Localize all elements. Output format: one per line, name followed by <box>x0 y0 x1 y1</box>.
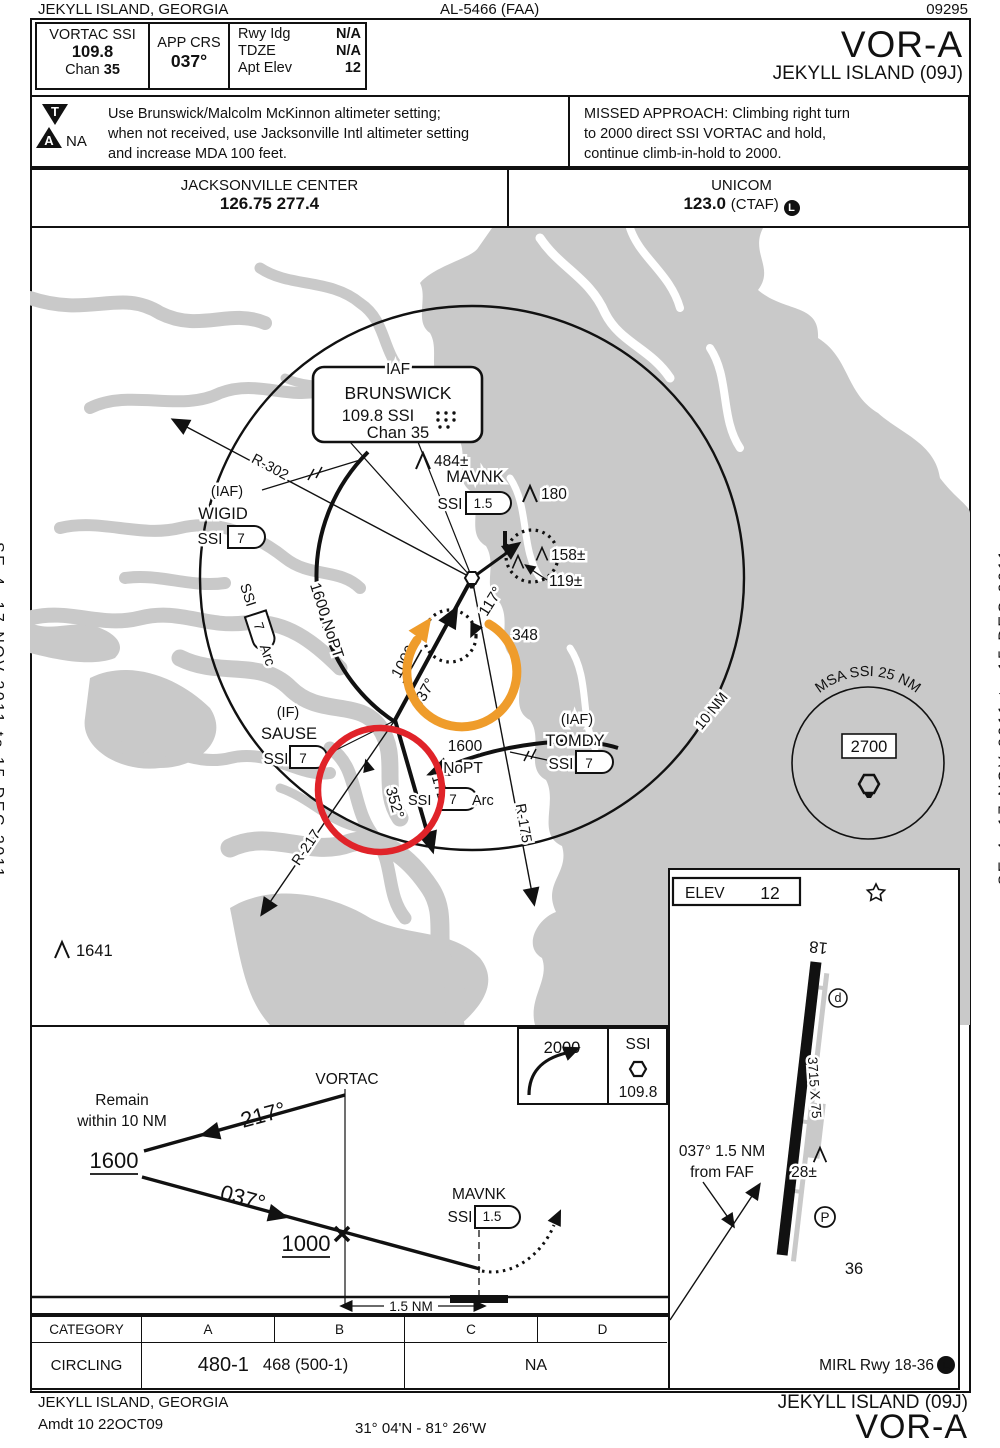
arc-south-dme-label: SSI 7 Arc <box>408 788 494 810</box>
runway-bar <box>450 1295 508 1303</box>
alternate-na: NA <box>66 133 87 150</box>
unicom-ctaf: (CTAF) <box>731 196 779 213</box>
obstacle-158: 158± <box>551 547 586 564</box>
unicom-name: UNICOM <box>509 177 974 194</box>
iaf-title: IAF <box>386 361 410 378</box>
elev-value: 12 <box>760 883 779 903</box>
svg-text:1.5 NM: 1.5 NM <box>389 1299 433 1313</box>
minimums-header-c: C <box>405 1317 538 1343</box>
svg-text:SAUSE: SAUSE <box>261 725 317 743</box>
svg-text:SSI: SSI <box>198 531 223 548</box>
svg-text:Arc: Arc <box>472 793 494 809</box>
footer-amdt: Amdt 10 22OCT09 <box>38 1416 163 1433</box>
parking-letter: P <box>820 1210 829 1225</box>
app-crs-label: APP CRS <box>150 35 228 51</box>
svg-text:1.5: 1.5 <box>483 1209 502 1224</box>
center-freqs: 126.75 277.4 <box>32 194 507 214</box>
apt-elev-value: 12 <box>345 60 361 76</box>
r175-label: R-175 <box>512 802 535 844</box>
obstacle-180: 180 <box>541 486 567 503</box>
iaf-freq: 109.8 SSI <box>342 407 414 425</box>
rad-348-label: 348 <box>512 627 538 644</box>
final-course-arrow <box>670 1196 752 1320</box>
circling-row-label: CIRCLING <box>32 1343 142 1388</box>
unicom-freq: 123.0 <box>683 194 726 213</box>
svg-text:L: L <box>943 1360 950 1372</box>
tdze-value: N/A <box>336 43 361 59</box>
iaf-chan: Chan 35 <box>367 424 429 442</box>
top-chart-number: 09295 <box>926 1 968 18</box>
minimums-header-category: CATEGORY <box>32 1317 142 1343</box>
svg-text:(IAF): (IAF) <box>561 712 593 728</box>
profile-mavnk: MAVNK SSI 1.5 <box>448 1186 520 1228</box>
notes-row: T A NA Use Brunswick/Malcolm McKinnon al… <box>30 95 970 168</box>
rwy-end-18: 18 <box>808 937 828 957</box>
obstacle-484: 484± <box>434 453 469 470</box>
edition-left: SE-4, 17 NOV 2011 to 15 DEC 2011 <box>0 542 6 879</box>
rwy-ldg-value: N/A <box>336 26 361 42</box>
airport-title: JEKYLL ISLAND (09J) <box>773 63 963 85</box>
briefing-strip: VORTAC SSI 109.8 Chan 35 APP CRS 037° Rw… <box>35 22 367 90</box>
svg-text:TOMDY: TOMDY <box>545 732 604 750</box>
arc-south-alt1: 1600 <box>448 738 483 755</box>
faf-note-line1: 037° 1.5 NM <box>679 1143 765 1160</box>
missed-navaid: SSI <box>626 1036 651 1053</box>
ctaf-l-badge: L <box>784 200 800 216</box>
profile-vortac-label: VORTAC <box>315 1071 378 1088</box>
svg-text:7: 7 <box>449 792 457 807</box>
star-icon <box>867 884 884 900</box>
circling-mins-ab: 480-1 468 (500-1) <box>142 1343 405 1388</box>
svg-text:WIGID: WIGID <box>198 505 248 523</box>
missed-freq: 109.8 <box>619 1084 658 1101</box>
rwy-end-36: 36 <box>845 1260 863 1278</box>
hold-altitude: 1600 <box>90 1148 139 1173</box>
obstacle-28: 28± <box>791 1164 817 1181</box>
navaid-chan-value: 35 <box>104 62 120 78</box>
svg-text:7: 7 <box>299 751 307 766</box>
crs-352-label: 352° <box>382 785 407 821</box>
svg-text:MAVNK: MAVNK <box>452 1186 507 1203</box>
svg-text:SSI: SSI <box>408 793 431 809</box>
remain-line2: within 10 NM <box>76 1113 167 1130</box>
takeoff-mins-icon: T <box>42 104 68 125</box>
msa-altitude: 2700 <box>851 738 888 756</box>
profile-view: 2000 SSI 109.8 Remain within 10 NM VORTA… <box>30 1025 670 1315</box>
navaid-chan-label: Chan <box>65 62 100 78</box>
svg-text:SSI: SSI <box>438 496 463 513</box>
minimums-header-a: A <box>142 1317 275 1343</box>
svg-text:7: 7 <box>585 756 593 771</box>
navaid-name: VORTAC SSI <box>37 27 148 43</box>
edition-right: SE-4, 17 NOV 2011 to 15 DEC 2011 <box>996 548 1000 885</box>
airport-sketch-svg: ELEV 12 18 36 3715 X 75 28± d P 037° 1.5… <box>670 870 958 1388</box>
svg-text:SSI: SSI <box>264 751 289 768</box>
svg-text:(IF): (IF) <box>277 705 300 721</box>
circling-mins-cd: NA <box>405 1343 667 1388</box>
alternate-mins-icon: A <box>36 127 62 148</box>
svg-text:1.5: 1.5 <box>474 496 493 511</box>
fix-mavnk: MAVNK SSI 1.5 <box>438 468 511 514</box>
footer-coords: 31° 04'N - 81° 26'W <box>355 1420 486 1437</box>
tdze-label: TDZE <box>238 43 276 59</box>
svg-text:SSI: SSI <box>448 1209 473 1226</box>
missed-approach-note: MISSED APPROACH: Climbing right turn to … <box>584 104 850 164</box>
r302-label: R-302 <box>249 451 291 484</box>
minimums-header-b: B <box>275 1317 405 1343</box>
faf-note-line2: from FAF <box>690 1164 754 1181</box>
profile-diagram: 2000 SSI 109.8 Remain within 10 NM VORTA… <box>32 1027 668 1313</box>
minimums-table: CATEGORY A B C D CIRCLING 480-1 468 (500… <box>30 1315 670 1390</box>
footer-procedure: VOR-A <box>855 1408 968 1447</box>
rwy-dimensions: 3715 X 75 <box>805 1056 824 1118</box>
airport-sketch: ELEV 12 18 36 3715 X 75 28± d P 037° 1.5… <box>668 868 960 1390</box>
mda-altitude: 1000 <box>282 1231 331 1256</box>
procedure-title: VOR-A <box>841 24 963 66</box>
top-chart-ref: AL-5466 (FAA) <box>440 1 539 18</box>
svg-text:(IAF): (IAF) <box>211 484 243 500</box>
svg-text:MAVNK: MAVNK <box>446 468 503 486</box>
missed-approach-boxes: 2000 SSI 109.8 <box>518 1028 667 1104</box>
footer-city: JEKYLL ISLAND, GEORGIA <box>38 1394 228 1411</box>
svg-text:7: 7 <box>237 531 245 546</box>
r302-radial <box>183 425 472 578</box>
outbound-crs: 217° <box>238 1097 288 1133</box>
obstacle-119: 119± <box>549 573 583 590</box>
inbound-crs: 037° <box>218 1180 268 1216</box>
ramp-letter: d <box>835 991 842 1005</box>
svg-text:SSI: SSI <box>236 582 258 609</box>
lighting-note: MIRL Rwy 18-36 <box>819 1357 934 1374</box>
navaid-freq: 109.8 <box>37 43 148 62</box>
top-city: JEKYLL ISLAND, GEORGIA <box>38 1 228 18</box>
comms-row: JACKSONVILLE CENTER 126.75 277.4 UNICOM … <box>30 168 970 228</box>
app-crs-value: 037° <box>150 51 228 72</box>
apt-elev-label: Apt Elev <box>238 60 292 76</box>
remain-line1: Remain <box>95 1092 148 1109</box>
iaf-brunswick-box: IAF BRUNSWICK 109.8 SSI Chan 35 <box>313 361 482 442</box>
tick-mark <box>503 531 507 549</box>
obstacle-1641: 1641 <box>76 942 113 960</box>
center-name: JACKSONVILLE CENTER <box>32 177 507 194</box>
elev-label: ELEV <box>685 885 725 902</box>
rwy-ldg-label: Rwy Idg <box>238 26 290 42</box>
minimums-header-d: D <box>538 1317 667 1343</box>
arc-south-alt2: NoPT <box>443 760 483 777</box>
approach-chart-page: SE-4, 17 NOV 2011 to 15 DEC 2011 SE-4, 1… <box>0 0 1000 1448</box>
svg-text:SSI: SSI <box>549 756 574 773</box>
altimeter-note: Use Brunswick/Malcolm McKinnon altimeter… <box>108 104 469 164</box>
iaf-name: BRUNSWICK <box>345 383 452 403</box>
